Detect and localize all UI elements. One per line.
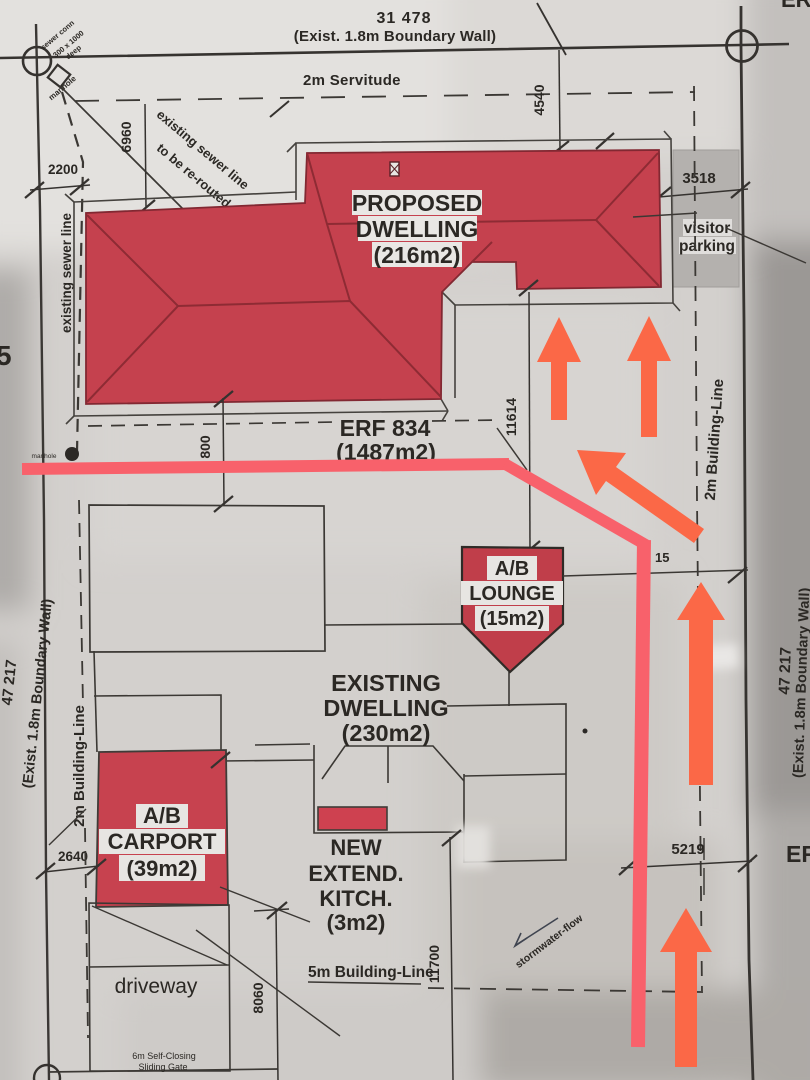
svg-text:(15m2): (15m2) bbox=[480, 608, 544, 630]
svg-text:3518: 3518 bbox=[682, 170, 715, 187]
svg-text:EXISTING: EXISTING bbox=[331, 670, 441, 696]
svg-text:existing sewer line: existing sewer line bbox=[59, 212, 74, 333]
svg-text:A/B: A/B bbox=[143, 803, 181, 828]
svg-text:11700: 11700 bbox=[426, 945, 442, 983]
svg-text:parking: parking bbox=[679, 238, 735, 255]
svg-text:5m Building-Line: 5m Building-Line bbox=[308, 964, 434, 981]
svg-text:DWELLING: DWELLING bbox=[323, 695, 448, 721]
svg-text:5: 5 bbox=[0, 340, 12, 371]
svg-text:47 217: 47 217 bbox=[776, 647, 795, 695]
svg-text:Sliding Gate: Sliding Gate bbox=[138, 1062, 187, 1072]
svg-text:31 478: 31 478 bbox=[377, 10, 432, 27]
svg-text:EXTEND.: EXTEND. bbox=[308, 861, 403, 886]
svg-text:800: 800 bbox=[197, 435, 213, 459]
svg-text:LOUNGE: LOUNGE bbox=[469, 583, 555, 605]
svg-text:8060: 8060 bbox=[250, 982, 266, 1013]
svg-text:(Exist. 1.8m Boundary Wall): (Exist. 1.8m Boundary Wall) bbox=[294, 28, 496, 45]
svg-text:ERF 834: ERF 834 bbox=[340, 415, 431, 441]
svg-text:A/B: A/B bbox=[495, 558, 529, 580]
svg-text:ER: ER bbox=[786, 841, 810, 867]
svg-text:2200: 2200 bbox=[48, 162, 78, 177]
svg-text:NEW: NEW bbox=[330, 835, 382, 860]
svg-text:4540: 4540 bbox=[531, 84, 547, 115]
svg-text:CARPORT: CARPORT bbox=[108, 829, 217, 854]
svg-text:6m Self-Closing: 6m Self-Closing bbox=[132, 1051, 196, 1061]
svg-text:6960: 6960 bbox=[118, 121, 134, 152]
svg-text:5219: 5219 bbox=[671, 841, 704, 858]
svg-text:DWELLING: DWELLING bbox=[356, 216, 479, 242]
svg-text:KITCH.: KITCH. bbox=[319, 886, 392, 911]
svg-text:visitor: visitor bbox=[684, 220, 731, 237]
svg-text:11614: 11614 bbox=[503, 398, 519, 436]
svg-text:manhole: manhole bbox=[32, 453, 57, 460]
svg-text:(230m2): (230m2) bbox=[342, 720, 431, 746]
svg-text:2m Servitude: 2m Servitude bbox=[303, 72, 401, 89]
svg-text:driveway: driveway bbox=[115, 975, 198, 998]
svg-text:(3m2): (3m2) bbox=[327, 910, 386, 935]
svg-text:(39m2): (39m2) bbox=[127, 856, 198, 881]
svg-text:(216m2): (216m2) bbox=[374, 242, 461, 268]
svg-text:15: 15 bbox=[655, 550, 669, 565]
svg-text:ERF: ERF bbox=[781, 0, 810, 12]
svg-text:2640: 2640 bbox=[58, 849, 88, 864]
svg-text:PROPOSED: PROPOSED bbox=[352, 190, 482, 216]
